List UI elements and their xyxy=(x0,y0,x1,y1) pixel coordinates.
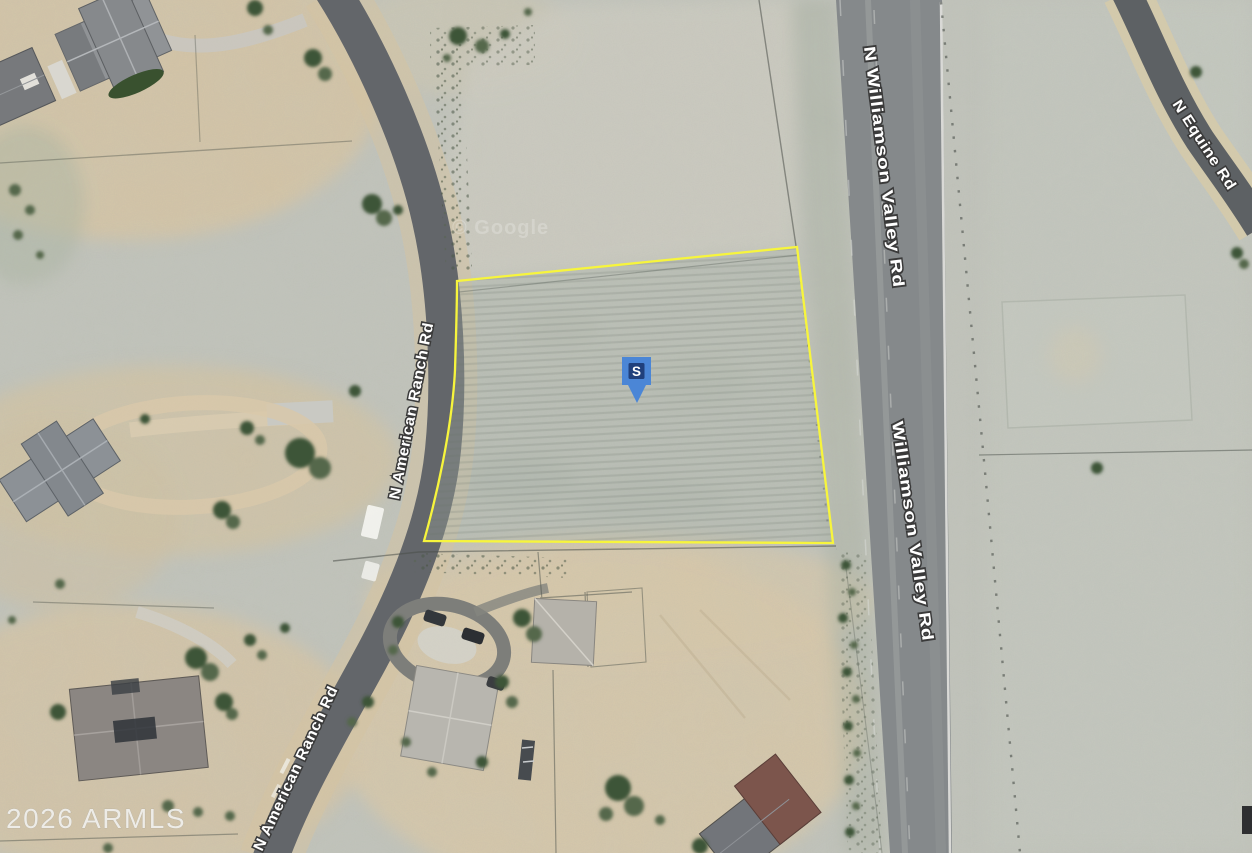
building xyxy=(69,672,208,781)
watermark-armls: 2026 ARMLS xyxy=(6,803,186,834)
satellite-map[interactable]: N American Ranch Rd N American Ranch Rd … xyxy=(0,0,1252,853)
marker-letter: S xyxy=(632,364,641,379)
watermark-google: © Google xyxy=(452,217,549,239)
building xyxy=(401,665,500,770)
parcel-outline xyxy=(410,240,850,555)
